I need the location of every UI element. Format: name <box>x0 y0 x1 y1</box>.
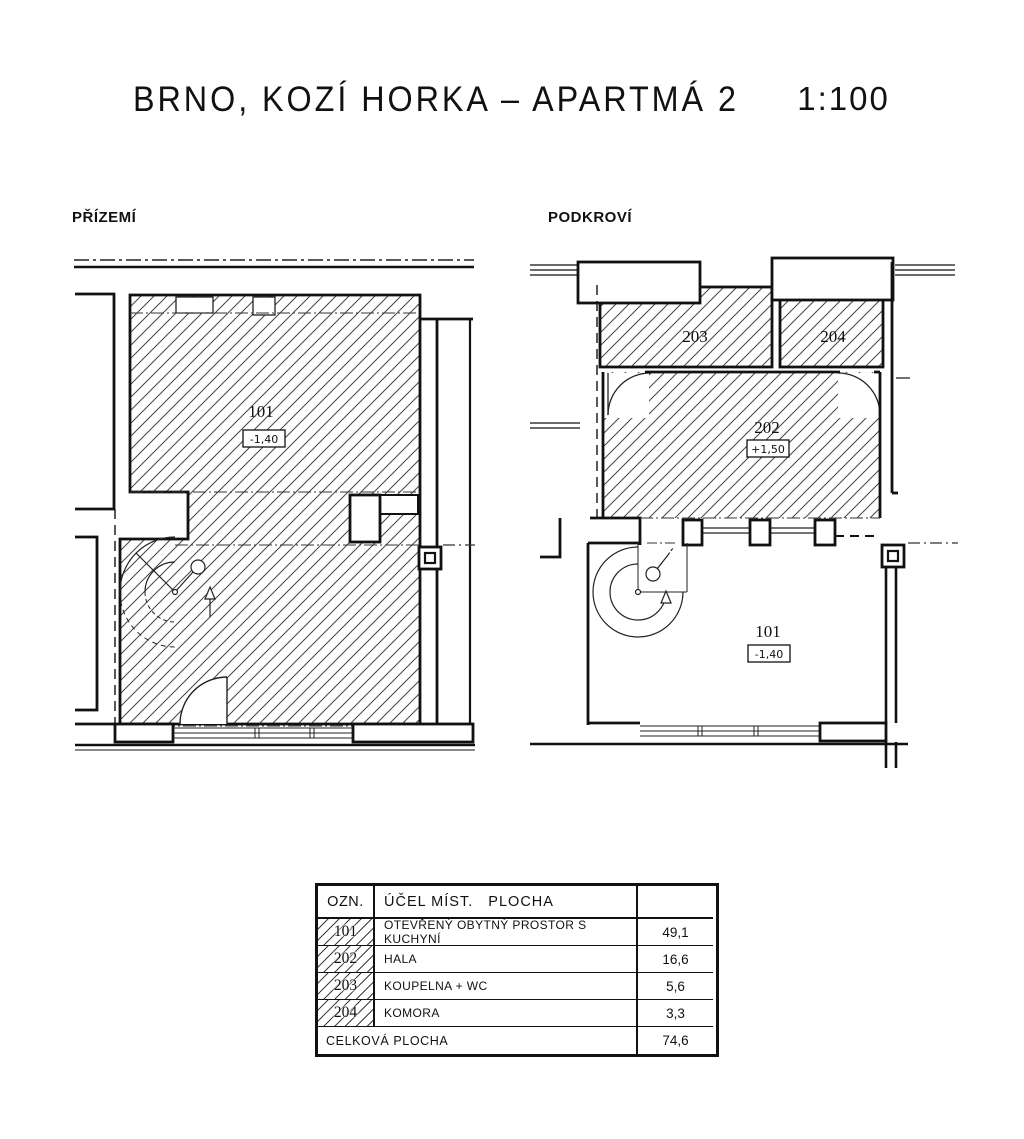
pillars-and-railing <box>683 520 880 545</box>
table-row-purpose: KOMORA <box>375 1000 638 1027</box>
site-centerline <box>74 260 474 267</box>
table-row-purpose: HALA <box>375 946 638 973</box>
elevation-tag: -1,40 <box>243 430 285 447</box>
elevation-value: -1,40 <box>755 648 783 661</box>
table-row-ozn: 101 <box>318 919 375 946</box>
adjacent-wall <box>75 294 114 710</box>
table-row-purpose: OTEVŘENÝ OBYTNÝ PROSTOR S KUCHYNÍ <box>375 919 638 946</box>
door-swing-left <box>604 373 650 418</box>
ground-floor-caption: PŘÍZEMÍ <box>72 209 136 226</box>
table-row-area: 49,1 <box>638 919 713 946</box>
table-row-ozn: 202 <box>318 946 375 973</box>
elevation-value: +1,50 <box>751 443 785 456</box>
chimney-symbol <box>419 545 475 569</box>
bottom-wall-and-window <box>530 723 908 744</box>
elevation-value: -1,40 <box>250 433 278 446</box>
right-outer-wall <box>420 319 473 724</box>
bottom-wall-and-window <box>75 724 475 750</box>
room-number-label: 203 <box>682 327 708 346</box>
chimney-symbol <box>647 543 958 567</box>
table-total-area: 74,6 <box>638 1027 713 1054</box>
table-row-area: 16,6 <box>638 946 713 973</box>
spiral-stair-symbol <box>593 543 687 637</box>
door-swing-right <box>838 373 880 418</box>
table-header-area <box>638 886 713 919</box>
table-row-area: 5,6 <box>638 973 713 1000</box>
room-number-label: 101 <box>755 622 781 641</box>
room-number-label: 101 <box>248 402 274 421</box>
table-row-ozn: 204 <box>318 1000 375 1027</box>
page-title: BRNO, KOZÍ HORKA – APARTMÁ 2 <box>133 78 739 119</box>
table-row-purpose: KOUPELNA + WC <box>375 973 638 1000</box>
elevation-tag: -1,40 <box>748 645 790 662</box>
table-header-ozn: OZN. <box>318 886 375 919</box>
elevation-tag: +1,50 <box>747 440 789 457</box>
attic-floor-plan-drawing: 203 204 202 +1,50 101 -1,40 <box>530 247 960 770</box>
room-number-label: 204 <box>820 327 846 346</box>
table-total-label: CELKOVÁ PLOCHA <box>318 1027 638 1054</box>
drawing-header: BRNO, KOZÍ HORKA – APARTMÁ 2 1:100 <box>133 80 890 118</box>
ground-floor-plan-drawing: 101 -1,40 <box>60 247 480 765</box>
room-number-label: 202 <box>754 418 780 437</box>
drawing-scale: 1:100 <box>797 80 890 118</box>
table-row-area: 3,3 <box>638 1000 713 1027</box>
attic-floor-caption: PODKROVÍ <box>548 209 632 226</box>
room-area-table: OZN. ÚČEL MÍST. PLOCHA 101 OTEVŘENÝ OBYT… <box>315 883 719 1057</box>
table-header-purpose: ÚČEL MÍST. PLOCHA <box>375 886 638 919</box>
table-row-ozn: 203 <box>318 973 375 1000</box>
